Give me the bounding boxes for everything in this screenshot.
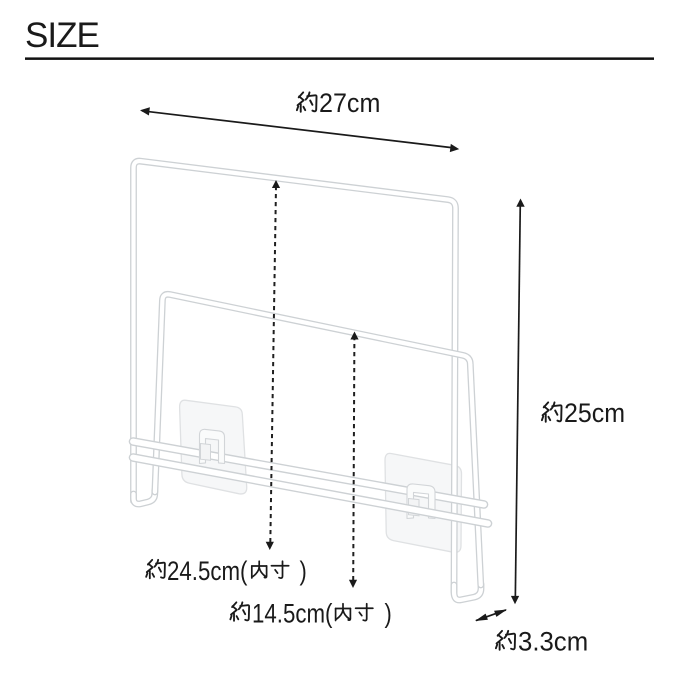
svg-text:25cm: 25cm	[564, 397, 625, 428]
svg-text:SIZE: SIZE	[25, 16, 99, 55]
svg-text:14.5cm(: 14.5cm(	[252, 600, 333, 629]
svg-text:24.5cm(: 24.5cm(	[167, 557, 248, 586]
svg-text:3.3cm: 3.3cm	[518, 626, 588, 657]
svg-text:27cm: 27cm	[319, 87, 380, 118]
svg-text:): )	[300, 557, 307, 587]
svg-text:): )	[385, 599, 392, 629]
